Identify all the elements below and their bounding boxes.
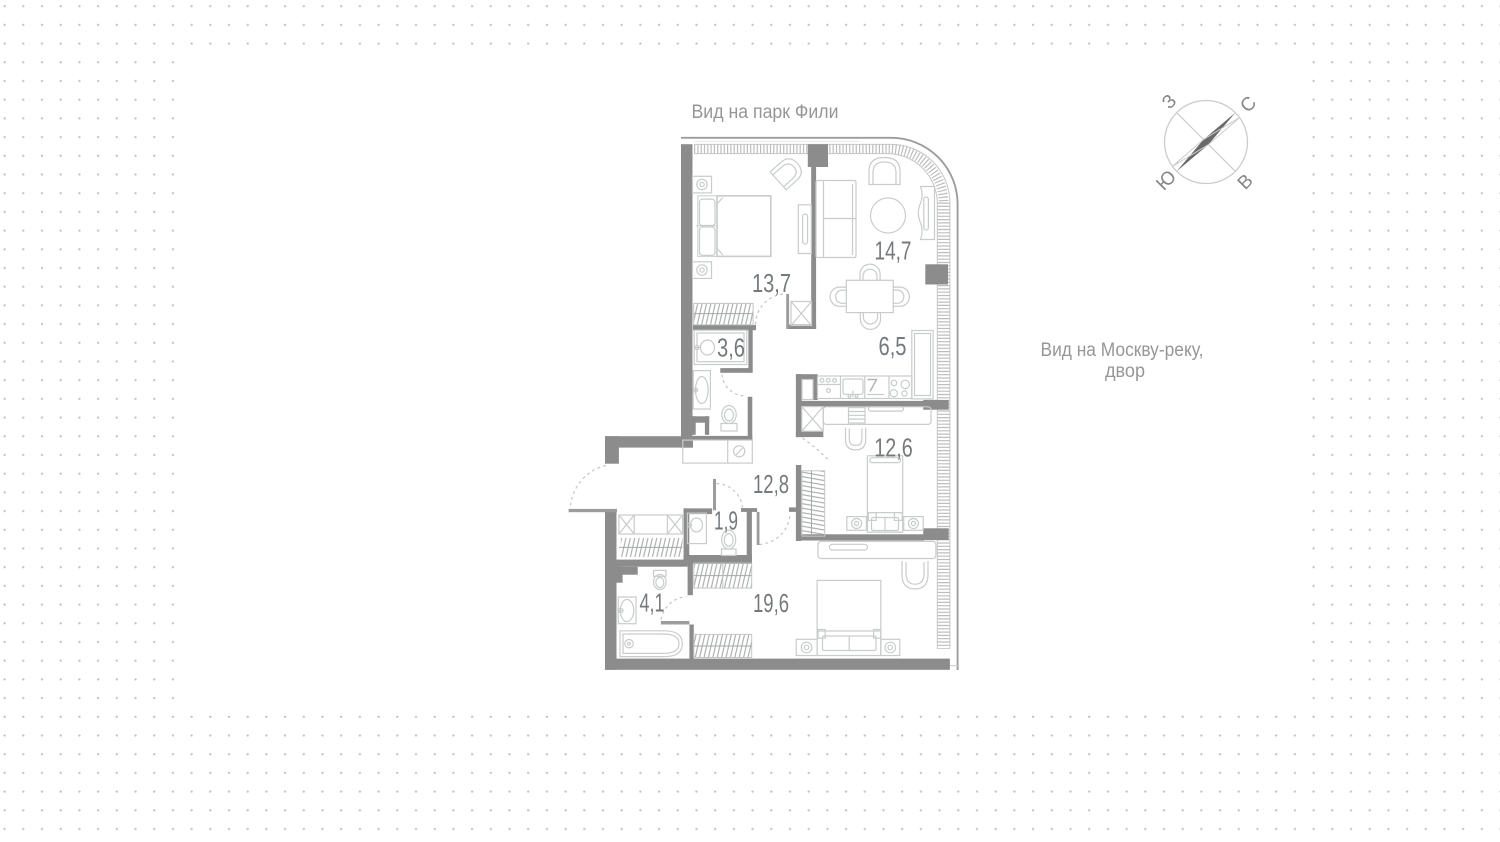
svg-text:14,7: 14,7 xyxy=(875,236,912,266)
svg-text:3,6: 3,6 xyxy=(717,333,745,363)
svg-text:двор: двор xyxy=(1105,361,1145,382)
svg-text:12,8: 12,8 xyxy=(753,469,789,499)
svg-text:19,6: 19,6 xyxy=(753,588,789,618)
svg-text:Вид на Москву-реку,: Вид на Москву-реку, xyxy=(1041,340,1204,361)
svg-text:4,1: 4,1 xyxy=(640,588,665,618)
svg-text:1,9: 1,9 xyxy=(714,506,738,536)
svg-text:Вид на парк Фили: Вид на парк Фили xyxy=(692,102,839,123)
svg-text:13,7: 13,7 xyxy=(752,268,791,298)
svg-text:6,5: 6,5 xyxy=(879,331,907,361)
svg-text:12,6: 12,6 xyxy=(874,433,913,463)
